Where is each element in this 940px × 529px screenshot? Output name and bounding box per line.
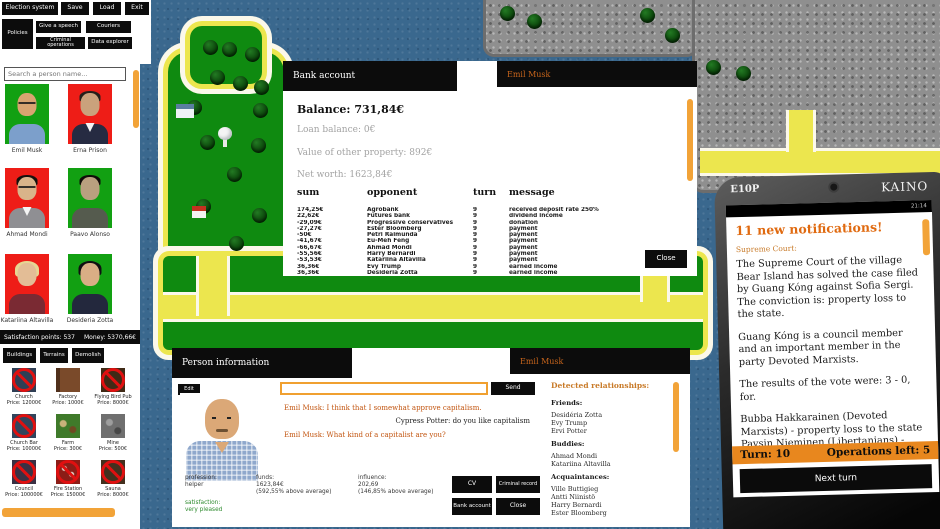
person-card-paavo[interactable]: Paavo Alonso: [68, 168, 112, 228]
people-scrollbar[interactable]: [133, 70, 139, 128]
tree-icon: [254, 80, 269, 95]
exit-button[interactable]: Exit: [125, 2, 149, 15]
criminal-operations-button[interactable]: Criminal operations: [36, 37, 85, 49]
top-menu-panel: Election system Save Load Exit Policies …: [0, 0, 151, 64]
bank-close-button[interactable]: Close: [645, 250, 687, 268]
send-button[interactable]: Send: [491, 382, 535, 395]
funds-label: funds:: [256, 475, 274, 482]
path-horizontal[interactable]: [163, 292, 703, 322]
list-item: Ville Buttigieg: [551, 485, 598, 493]
list-item: Evy Trump: [551, 419, 587, 427]
notification-paragraph: The results of the vote were: 3 - 0, for…: [739, 375, 925, 405]
building-item-fire-station[interactable]: Fire StationPrice: 15000€: [48, 460, 88, 499]
list-item: Ester Bloomberg: [551, 509, 607, 517]
mine-icon: [101, 414, 125, 438]
game-screen: Election system Save Load Exit Policies …: [0, 0, 940, 529]
building-item-church-bar[interactable]: Church BarPrice: 10000€: [4, 414, 44, 453]
profession-label: profession:: [185, 475, 217, 482]
path-vertical-left[interactable]: [196, 256, 230, 316]
tree-icon: [251, 138, 266, 153]
person-close-button[interactable]: Close: [496, 498, 540, 515]
save-button[interactable]: Save: [61, 2, 89, 15]
criminal-record-button[interactable]: Criminal record: [496, 476, 540, 493]
bank-loan-balance: Loan balance: 0€: [297, 125, 375, 135]
church-bar-icon: [12, 414, 36, 438]
horizontal-scrollbar[interactable]: [2, 508, 115, 517]
bank-net-worth: Net worth: 1623,84€: [297, 170, 392, 180]
tree-icon: [245, 47, 260, 62]
relationships-title: Detected relationships:: [551, 381, 649, 390]
phone-brand: KAINO: [881, 179, 929, 194]
bank-person-tab-label: Emil Musk: [507, 70, 550, 79]
church-icon: [12, 368, 36, 392]
tree-icon: [227, 167, 242, 182]
search-input[interactable]: [4, 67, 126, 81]
fire-station-icon: [56, 460, 80, 484]
person-card-emil[interactable]: Emil Musk: [5, 84, 49, 144]
policies-button[interactable]: Policies: [2, 19, 33, 49]
chat-message: Emil Musk: I think that I somewhat appro…: [284, 404, 482, 412]
avatar: [68, 168, 112, 228]
turn-counter: Turn: 10: [740, 448, 790, 461]
tree-icon: [229, 236, 244, 251]
sidebar: Emil Musk Erna Prison Ahmad Mondi Paavo …: [0, 64, 140, 529]
chat-person-tab[interactable]: Emil Musk: [510, 348, 690, 374]
buddies-label: Buddies:: [551, 440, 584, 448]
notifications-title: 11 new notifications!: [735, 218, 920, 238]
red-roof-hut-icon: [192, 206, 206, 218]
building-item-pub[interactable]: Flying Bird PubPrice: 8000€: [93, 368, 133, 407]
acquaintances-label: Acquaintances:: [551, 473, 609, 481]
tree-icon: [253, 103, 268, 118]
notification-paragraph: The Supreme Court of the village Bear Is…: [736, 254, 923, 321]
couriers-button[interactable]: Couriers: [86, 21, 131, 33]
operations-left: Operations left: 5: [827, 444, 931, 459]
satisfaction-value: very pleased: [185, 507, 222, 514]
list-item: Harry Bernardi: [551, 501, 602, 509]
influence-note: (146,85% above average): [358, 489, 434, 496]
give-a-speech-button[interactable]: Give a speech: [36, 21, 81, 33]
person-card-erna[interactable]: Erna Prison: [68, 84, 112, 144]
phone-clock: 21:14: [911, 203, 927, 209]
tree-icon: [706, 60, 721, 75]
tree-icon: [210, 70, 225, 85]
bank-person-tab[interactable]: Emil Musk: [497, 61, 697, 87]
influence-label: influence:: [358, 475, 387, 482]
pub-icon: [101, 368, 125, 392]
status-bar: Satisfaction points: 537 Money: 5370,66€: [0, 330, 140, 344]
person-name: Desideria Zotta: [56, 317, 124, 324]
person-dialog-titlebar[interactable]: Person information: [172, 348, 352, 378]
farm-icon: [56, 414, 80, 438]
bank-transaction-table: 174,25€Agrobank9received deposit rate 25…: [297, 207, 677, 276]
water-tower-tank-icon: [218, 127, 232, 140]
avatar: [5, 168, 49, 228]
tab-terrains[interactable]: Terrains: [40, 348, 68, 363]
bank-account-dialog: Bank account Emil Musk Balance: 731,84€ …: [283, 61, 697, 276]
building-item-church[interactable]: ChurchPrice: 12000€: [4, 368, 44, 407]
bank-dialog-titlebar[interactable]: Bank account: [283, 61, 457, 91]
phone-panel: E10P KAINO 21:14 11 new notifications! S…: [714, 172, 940, 529]
tree-icon: [222, 42, 237, 57]
funds-note: (592,55% above average): [256, 489, 332, 496]
relationships-scrollbar[interactable]: [673, 382, 679, 452]
house-icon: [176, 104, 194, 118]
satisfaction-label: satisfaction:: [185, 500, 220, 507]
table-row: 36,36€Desidéria Zotta9earned income: [297, 270, 677, 276]
chat-message: Cypress Potter: do you like capitalism: [396, 417, 530, 425]
building-item-factory[interactable]: FactoryPrice: 1000€: [48, 368, 88, 407]
money-amount: Money: 5370,66€: [84, 334, 136, 341]
person-card-desideria[interactable]: Desideria Zotta: [68, 254, 112, 314]
list-item: Antti Niinistö: [551, 493, 595, 501]
tab-buildings[interactable]: Buildings: [3, 348, 36, 363]
cv-button[interactable]: CV: [452, 476, 492, 493]
influence-value: 202,69: [358, 482, 378, 489]
tab-demolish[interactable]: Demolish: [72, 348, 104, 363]
tree-icon: [500, 6, 515, 21]
bank-dialog-title: Bank account: [293, 71, 355, 81]
data-explorer-button[interactable]: Data explorer: [88, 37, 132, 49]
tree-icon: [233, 76, 248, 91]
person-name: Erna Prison: [56, 147, 124, 154]
list-item: Ahmad Mondi: [551, 452, 597, 460]
chat-message: Emil Musk: What kind of a capitalist are…: [284, 431, 446, 439]
funds-value: 1623,84€: [256, 482, 284, 489]
notifications-area[interactable]: 11 new notifications! Supreme Court: The…: [726, 212, 938, 446]
person-card-ahmad[interactable]: Ahmad Mondi: [5, 168, 49, 228]
tree-icon: [736, 66, 751, 81]
person-information-dialog: Person information Emil Musk Edit Send E…: [172, 348, 690, 527]
list-item: Desidéria Zotta: [551, 411, 602, 419]
person-dialog-title: Person information: [182, 358, 269, 368]
building-item-council[interactable]: CouncilPrice: 100000€: [4, 460, 44, 499]
phone-model: E10P: [730, 184, 759, 199]
load-button[interactable]: Load: [93, 2, 121, 15]
rock-area-top[interactable]: [486, 0, 695, 54]
bank-scrollbar[interactable]: [687, 99, 693, 181]
person-portrait: [180, 393, 264, 481]
tree-icon: [200, 135, 215, 150]
bank-account-button[interactable]: Bank account: [452, 498, 492, 515]
phone-brand-row: E10P KAINO: [730, 179, 928, 198]
tree-icon: [527, 14, 542, 29]
next-turn-button[interactable]: Next turn: [740, 464, 933, 493]
tree-icon: [203, 40, 218, 55]
person-name: Ahmad Mondi: [0, 231, 61, 238]
satisfaction-points: Satisfaction points: 537: [4, 334, 75, 341]
avatar: [68, 84, 112, 144]
path-rock-vertical[interactable]: [786, 110, 816, 152]
factory-icon: [56, 368, 80, 392]
council-icon: [12, 460, 36, 484]
bank-property-value: Value of other property: 892€: [297, 148, 432, 158]
building-item-sauna[interactable]: SaunaPrice: 8000€: [93, 460, 133, 499]
election-system-button[interactable]: Election system: [2, 2, 58, 15]
building-item-farm[interactable]: FarmPrice: 300€: [48, 414, 88, 453]
person-card-katariina[interactable]: Katariina Altavilla: [5, 254, 49, 314]
person-name: Katariina Altavilla: [0, 317, 61, 324]
tree-icon: [640, 8, 655, 23]
sauna-icon: [101, 460, 125, 484]
bank-table-header: sumopponentturnmessage: [297, 187, 677, 198]
list-item: Ervi Potter: [551, 427, 587, 435]
notification-source: Supreme Court:: [736, 240, 921, 254]
chat-person-tab-label: Emil Musk: [520, 357, 563, 366]
avatar: [5, 84, 49, 144]
person-name: Emil Musk: [0, 147, 61, 154]
tree-icon: [252, 208, 267, 223]
phone-screen: 21:14 11 new notifications! Supreme Cour…: [726, 200, 940, 497]
building-item-mine[interactable]: MinePrice: 500€: [93, 414, 133, 453]
notifications-scrollbar[interactable]: [922, 219, 930, 255]
notification-paragraph: Guang Kóng is a council member and an im…: [738, 327, 924, 369]
avatar: [68, 254, 112, 314]
avatar: [5, 254, 49, 314]
person-name: Paavo Alonso: [56, 231, 124, 238]
tree-icon: [665, 28, 680, 43]
chat-input[interactable]: [280, 382, 488, 395]
profession-value: helper: [185, 482, 203, 489]
list-item: Katariina Altavilla: [551, 460, 611, 468]
bank-balance: Balance: 731,84€: [297, 103, 404, 116]
friends-label: Friends:: [551, 399, 582, 407]
